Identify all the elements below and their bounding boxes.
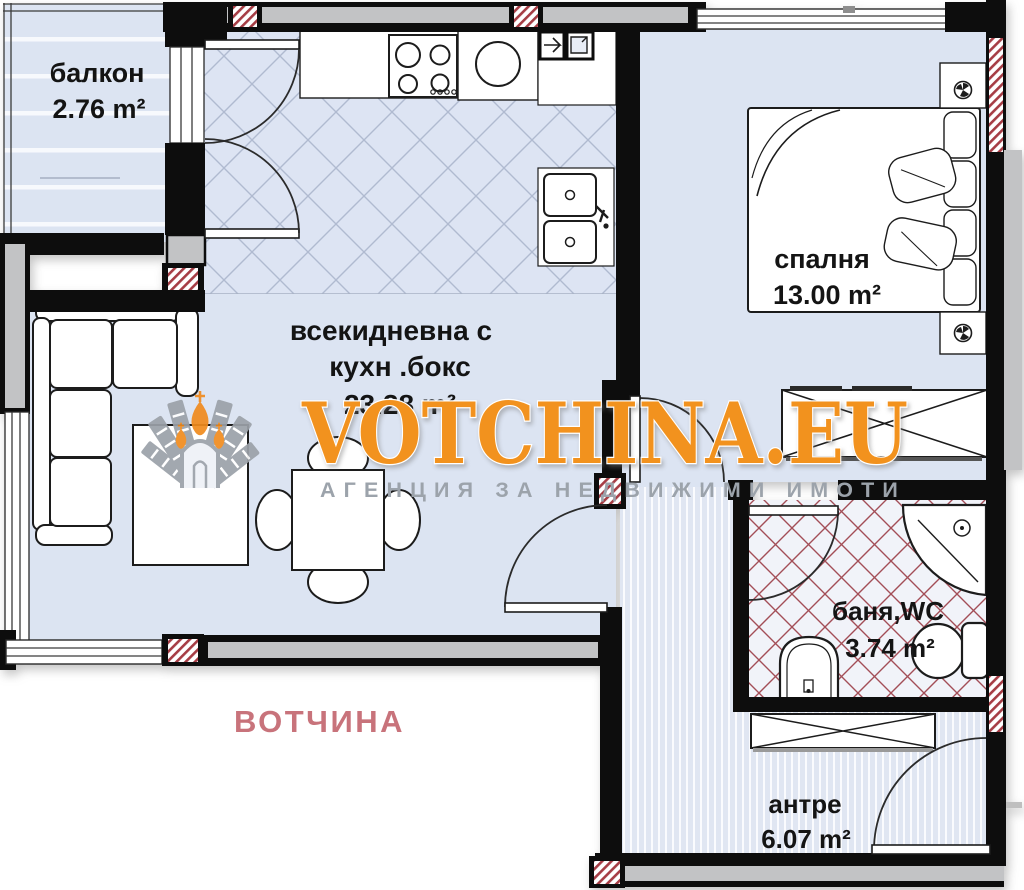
balcony-label: балкон <box>50 58 145 88</box>
living-bottom-window <box>6 640 162 664</box>
nightstand <box>940 312 986 354</box>
bathroom-area: 3.74 m² <box>845 633 935 663</box>
bedroom-area: 13.00 m² <box>773 280 881 310</box>
bathroom-sink-icon <box>780 637 838 697</box>
balcony-area: 2.76 m² <box>52 94 145 124</box>
entry-area: 6.07 m² <box>761 824 851 854</box>
nightstand <box>940 63 986 108</box>
bedroom-label: спалня <box>774 244 870 274</box>
kitchen-double-sink-icon <box>538 168 614 266</box>
watermark-tagline: АГЕНЦИЯ ЗА НЕДВИЖИМИ ИМОТИ <box>320 479 906 502</box>
bathroom-label: баня,WC <box>832 596 944 626</box>
stove-icon <box>389 35 457 97</box>
watermark-brand: VOTCHINA.EU <box>301 384 908 483</box>
entry-label: антре <box>768 789 841 819</box>
kitchen-counter <box>300 30 538 100</box>
appliance-icon <box>540 32 593 59</box>
living-left-window <box>5 412 29 656</box>
living-room-label: всекидневна с <box>290 315 492 346</box>
kitchen-round-sink-icon <box>458 30 538 100</box>
entry-wardrobe <box>751 714 935 752</box>
living-room-label-2: кухн .бокс <box>329 351 471 382</box>
agency-name: ВОТЧИНА <box>234 704 405 739</box>
floor-plan: балкон 2.76 m² всекидневна с кухн .бокс … <box>0 0 1024 890</box>
